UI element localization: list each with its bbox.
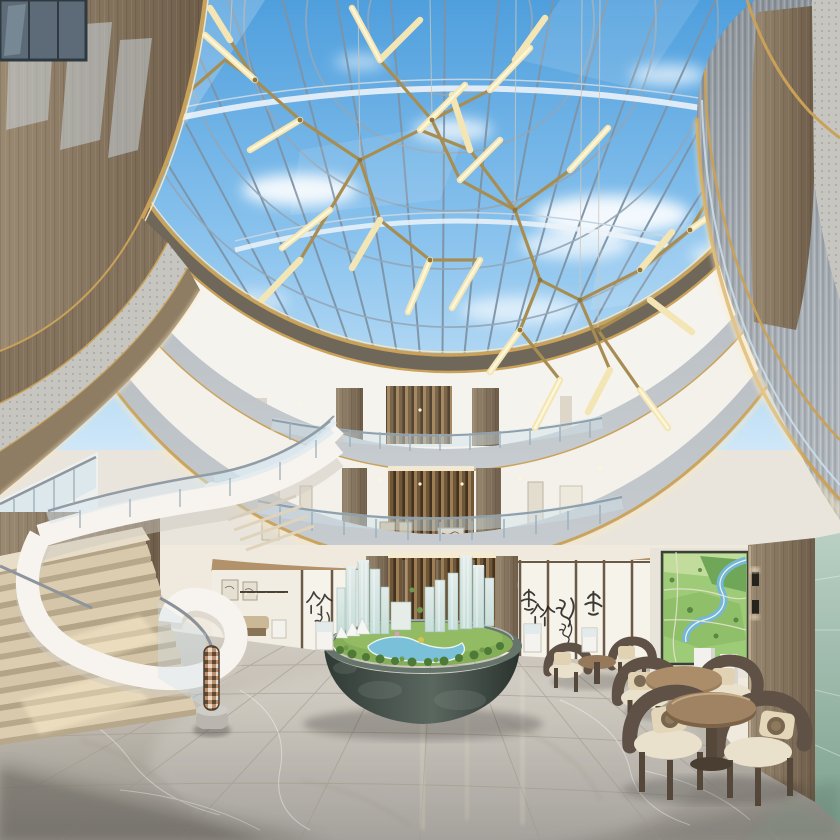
atrium-lobby-rendering: [0, 0, 840, 840]
scene-canvas: [0, 0, 840, 840]
landscape-mural: [662, 552, 748, 664]
